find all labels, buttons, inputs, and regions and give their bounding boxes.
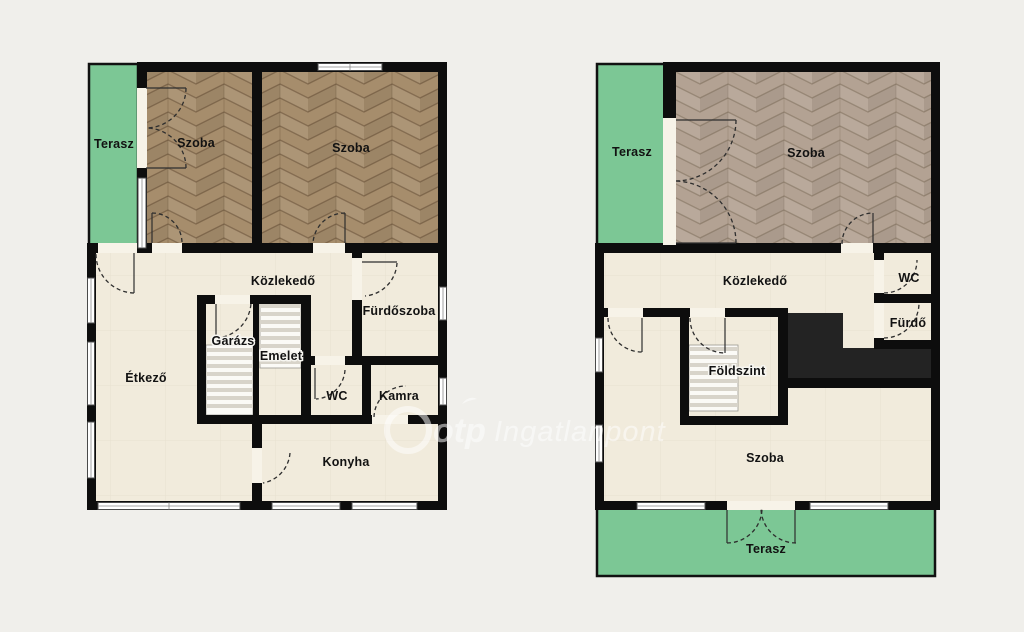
room-label-szoba1: Szoba (177, 136, 216, 150)
window (98, 503, 240, 510)
room-label-terasz-bottom: Terasz (746, 542, 786, 556)
room-label-kozlekedo: Közlekedő (251, 274, 315, 288)
dark-builtin-block (788, 348, 931, 379)
window (88, 342, 95, 405)
room-label-kamra: Kamra (379, 389, 420, 403)
wall (301, 295, 311, 424)
wall (362, 356, 371, 424)
wall (931, 62, 940, 510)
window (440, 287, 447, 320)
door-opening (215, 295, 250, 304)
door-opening (727, 501, 795, 510)
wall (197, 415, 447, 424)
door-opening (137, 88, 147, 168)
room-label-furdo: Fürdő (890, 316, 927, 330)
door-opening (315, 356, 345, 365)
room-label-konyha: Konyha (322, 455, 370, 469)
room-label-szoba-bottom: Szoba (746, 451, 785, 465)
floor-plan-svg: Terasz Szoba Szoba Közlekedő Fürdőszoba … (0, 0, 1024, 632)
room-label-szoba2: Szoba (332, 141, 371, 155)
wall (778, 378, 940, 388)
door-opening (663, 118, 676, 245)
room-label-furdoszoba: Fürdőszoba (363, 304, 437, 318)
wall (663, 62, 940, 72)
room-label-terasz: Terasz (94, 137, 134, 151)
watermark-brand: otp (433, 412, 486, 450)
door-opening (98, 243, 137, 253)
door-opening (313, 243, 345, 253)
room-label-garazs: Garázs (212, 334, 255, 348)
wall (253, 295, 259, 424)
stairs-to-ground-floor (689, 345, 738, 411)
window (272, 503, 340, 510)
wall (680, 416, 788, 425)
room-szoba1-floor (142, 68, 255, 246)
door-opening (690, 308, 725, 317)
door-opening (152, 243, 182, 253)
room-szoba2-floor (259, 68, 441, 246)
wall (137, 62, 447, 72)
window (352, 503, 417, 510)
window (88, 422, 95, 478)
door-opening (352, 258, 362, 300)
window (138, 178, 146, 248)
room-label-emelet: Emelet (260, 349, 303, 363)
room-label-kozlekedo: Közlekedő (723, 274, 787, 288)
dark-builtin-block (788, 313, 843, 349)
room-label-terasz-top: Terasz (612, 145, 652, 159)
window (440, 378, 447, 405)
room-label-wc: WC (898, 271, 919, 285)
room-label-foldszint: Földszint (709, 364, 766, 378)
door-opening (252, 448, 262, 483)
room-label-wc: WC (326, 389, 347, 403)
wall (874, 340, 940, 349)
floorplan-right: Terasz Szoba Közlekedő WC Fürdő Földszin… (595, 62, 940, 576)
door-opening (841, 243, 873, 253)
wall (252, 62, 262, 253)
door-opening (874, 260, 884, 293)
watermark-name: Ingatlanpont (494, 416, 667, 448)
window (637, 503, 705, 510)
terrace-top-left (89, 64, 138, 250)
window (318, 64, 382, 71)
window (810, 503, 888, 510)
wall (778, 308, 788, 425)
watermark-leaf-icon (462, 398, 477, 404)
room-label-etkezo: Étkező (125, 370, 167, 385)
wall (680, 308, 689, 425)
room-label-szoba-top: Szoba (787, 146, 826, 160)
window (88, 278, 95, 323)
door-opening (874, 303, 884, 338)
wall (595, 243, 604, 510)
window (596, 338, 603, 372)
wall (595, 243, 940, 253)
stairs-to-garage (206, 345, 253, 415)
door-opening (608, 308, 643, 317)
wall (874, 294, 940, 303)
wall (197, 295, 206, 424)
floor-plan-image: Terasz Szoba Szoba Közlekedő Fürdőszoba … (0, 0, 1024, 632)
